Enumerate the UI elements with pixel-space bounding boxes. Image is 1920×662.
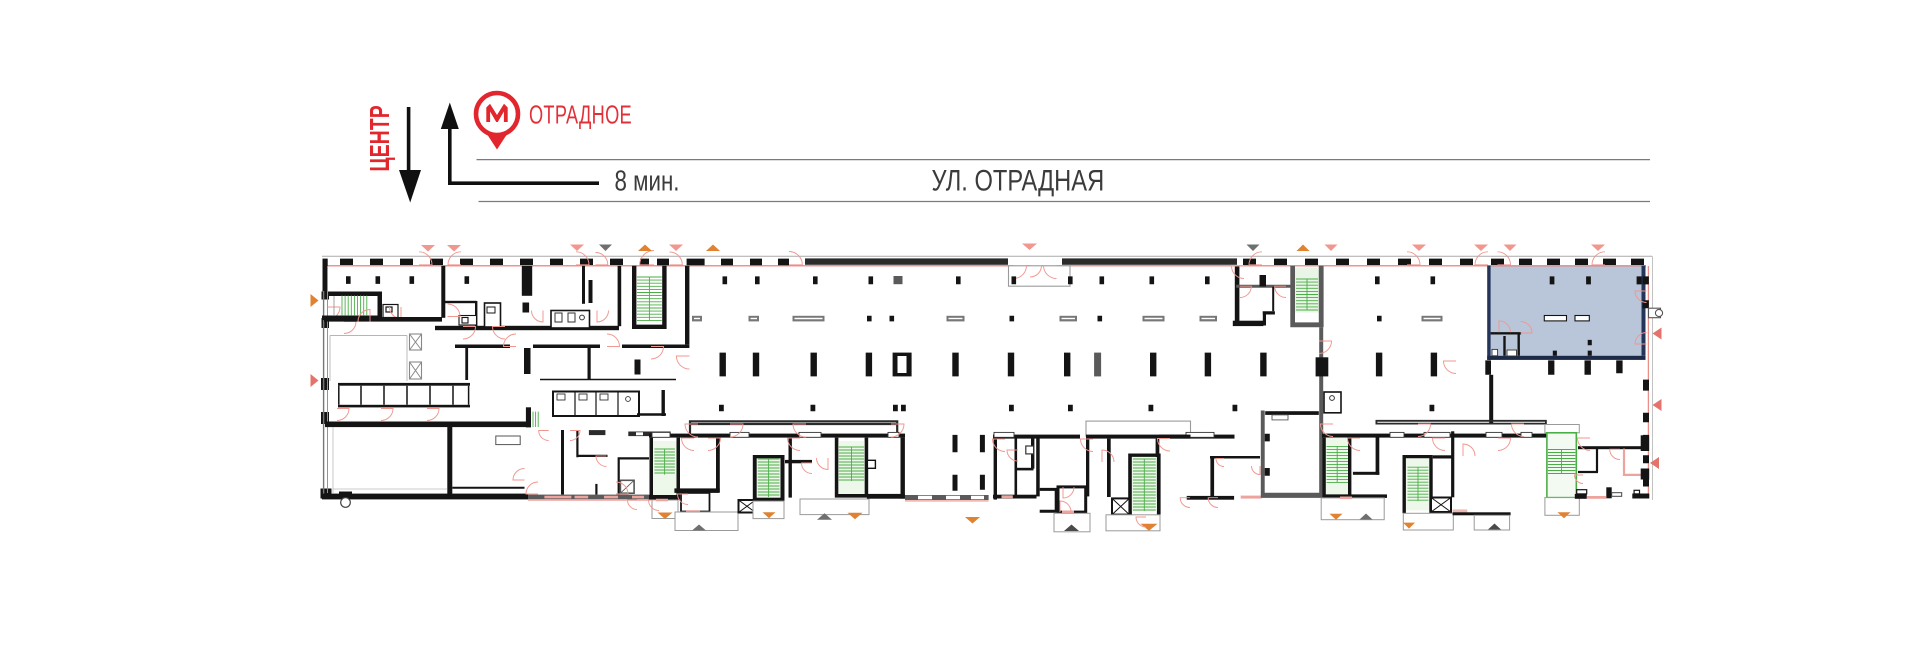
svg-text:ЦЕНТР: ЦЕНТР (366, 105, 396, 171)
svg-text:УЛ. ОТРАДНАЯ: УЛ. ОТРАДНАЯ (932, 164, 1105, 197)
svg-text:8 мин.: 8 мин. (615, 166, 680, 197)
svg-text:ОТРАДНОЕ: ОТРАДНОЕ (529, 100, 632, 129)
